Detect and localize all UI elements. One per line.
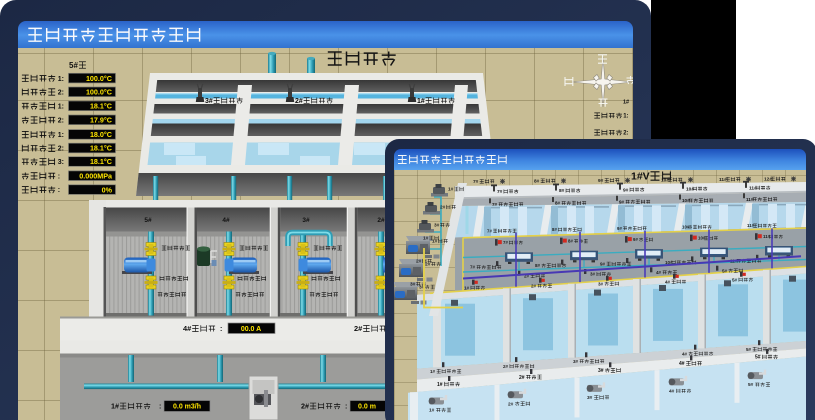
- svg-text:9#: 9#: [600, 262, 606, 267]
- svg-text:17.9°C: 17.9°C: [90, 116, 112, 125]
- svg-text:1#: 1#: [111, 402, 119, 411]
- svg-text:1#: 1#: [429, 408, 435, 414]
- svg-text:1:: 1:: [623, 114, 628, 120]
- svg-text:4#: 4#: [183, 324, 191, 333]
- svg-text:2#: 2#: [416, 259, 422, 265]
- svg-text:1#: 1#: [464, 285, 470, 290]
- svg-text:7#: 7#: [492, 202, 498, 207]
- svg-text:8#: 8#: [555, 201, 561, 206]
- svg-text:4#: 4#: [665, 279, 671, 284]
- svg-text:2#: 2#: [295, 98, 303, 105]
- svg-text:4#: 4#: [682, 351, 688, 356]
- svg-text:2:: 2:: [623, 131, 628, 137]
- svg-text::: :: [58, 187, 60, 194]
- svg-text:18.1°C: 18.1°C: [90, 144, 112, 153]
- svg-text:1:: 1:: [58, 76, 64, 83]
- svg-text:3#: 3#: [590, 272, 596, 277]
- svg-text:4#: 4#: [656, 270, 662, 275]
- svg-text:0.0 m: 0.0 m: [358, 403, 376, 410]
- svg-text:5#: 5#: [732, 277, 738, 282]
- svg-text:2#: 2#: [377, 217, 385, 224]
- svg-text:4#: 4#: [222, 217, 230, 224]
- svg-text:7#: 7#: [503, 240, 508, 245]
- svg-text:4#: 4#: [679, 361, 685, 367]
- svg-text:1:: 1:: [58, 104, 64, 111]
- svg-text:1#: 1#: [623, 99, 629, 105]
- svg-text:3#: 3#: [205, 98, 213, 105]
- svg-text:100.0°C: 100.0°C: [86, 88, 112, 97]
- svg-text:1#V: 1#V: [631, 171, 650, 183]
- svg-text:9#: 9#: [617, 226, 622, 231]
- svg-text::: :: [345, 403, 347, 410]
- svg-text:5#: 5#: [748, 382, 754, 388]
- svg-text:1:: 1:: [58, 132, 64, 139]
- svg-text:1#: 1#: [437, 382, 443, 388]
- svg-text::: :: [58, 173, 60, 180]
- svg-text:2#: 2#: [440, 205, 446, 211]
- svg-text:7#: 7#: [473, 179, 479, 185]
- svg-text:12#: 12#: [764, 177, 772, 183]
- svg-text:3#: 3#: [573, 359, 579, 364]
- svg-text:0%: 0%: [102, 185, 113, 194]
- svg-text:11#: 11#: [746, 197, 754, 202]
- svg-text:2#: 2#: [508, 401, 514, 407]
- svg-text:100.0°C: 100.0°C: [86, 74, 112, 83]
- svg-text:1#: 1#: [423, 236, 429, 242]
- svg-text:7#: 7#: [497, 189, 503, 195]
- svg-text:18.0°C: 18.0°C: [90, 130, 112, 139]
- svg-text:3#: 3#: [598, 281, 604, 286]
- svg-text:4#: 4#: [669, 389, 675, 395]
- svg-text::: :: [220, 326, 222, 333]
- svg-text:8#: 8#: [552, 227, 557, 232]
- svg-text:5#: 5#: [746, 347, 752, 352]
- svg-text:2#: 2#: [519, 375, 525, 381]
- svg-text:1#: 1#: [448, 187, 454, 193]
- svg-text:0.000MPa: 0.000MPa: [79, 171, 113, 180]
- svg-text:7#: 7#: [470, 265, 476, 270]
- svg-text:8#: 8#: [534, 179, 540, 185]
- svg-text:9#: 9#: [598, 178, 604, 184]
- svg-text:8#: 8#: [559, 188, 565, 194]
- svg-text:8#: 8#: [568, 239, 573, 244]
- svg-text:5#: 5#: [722, 268, 728, 273]
- svg-text:5#: 5#: [69, 61, 78, 70]
- svg-text:2:: 2:: [58, 90, 64, 97]
- svg-text:5#: 5#: [144, 217, 152, 224]
- svg-text:2#: 2#: [354, 324, 362, 333]
- svg-text:11#: 11#: [719, 177, 727, 183]
- svg-text:3#: 3#: [434, 223, 440, 229]
- svg-text:3#: 3#: [587, 395, 593, 401]
- svg-text:3#: 3#: [410, 282, 416, 288]
- svg-text:2#: 2#: [301, 402, 309, 411]
- svg-text:3#: 3#: [302, 217, 310, 224]
- svg-text:7#: 7#: [487, 228, 492, 233]
- svg-text:10#: 10#: [682, 225, 690, 230]
- svg-text:9#: 9#: [633, 237, 638, 242]
- svg-text:2:: 2:: [58, 118, 64, 125]
- svg-text:9#: 9#: [623, 187, 629, 193]
- svg-text:18.1°C: 18.1°C: [90, 157, 112, 166]
- svg-text:18.1°C: 18.1°C: [90, 102, 112, 111]
- svg-text:10#: 10#: [661, 177, 669, 183]
- svg-text:1#: 1#: [417, 98, 425, 105]
- svg-text:00.0 A: 00.0 A: [241, 326, 261, 333]
- svg-text:9#: 9#: [619, 199, 625, 204]
- svg-text:2:: 2:: [58, 146, 64, 153]
- svg-text:3#: 3#: [598, 368, 604, 374]
- svg-text:2#: 2#: [503, 364, 509, 369]
- svg-text:1#: 1#: [430, 369, 436, 374]
- svg-text:8#: 8#: [535, 263, 541, 268]
- svg-text:5#: 5#: [755, 355, 761, 361]
- svg-text:3:: 3:: [58, 159, 64, 166]
- svg-text:0.0 m3/h: 0.0 m3/h: [173, 403, 201, 410]
- svg-text::: :: [159, 403, 161, 410]
- svg-text:2#: 2#: [531, 283, 537, 288]
